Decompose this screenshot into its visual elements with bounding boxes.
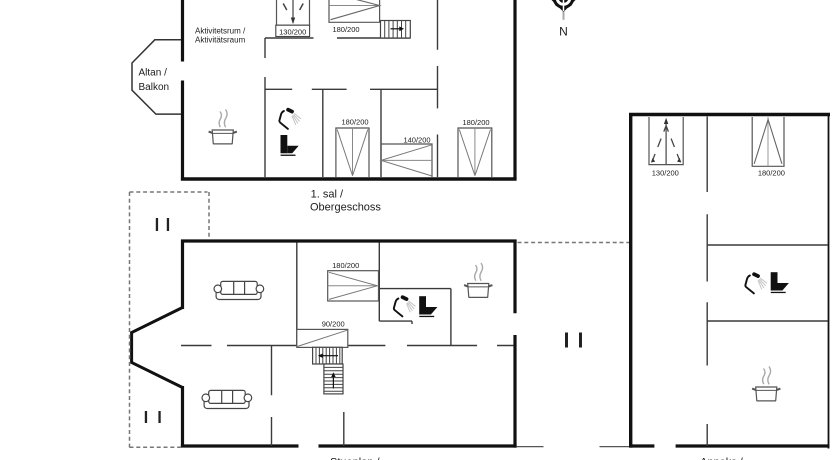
svg-text:90/200: 90/200: [322, 319, 345, 328]
svg-text:180/200: 180/200: [332, 261, 359, 270]
svg-text:180/200: 180/200: [462, 118, 489, 127]
svg-text:Aktivitätsraum: Aktivitätsraum: [195, 35, 246, 44]
svg-text:Aktivitetsrum /: Aktivitetsrum /: [195, 26, 246, 35]
svg-text:1. sal /: 1. sal /: [311, 189, 344, 201]
svg-text:180/200: 180/200: [758, 169, 785, 178]
svg-text:130/200: 130/200: [279, 27, 306, 36]
svg-text:Altan /: Altan /: [139, 68, 168, 79]
svg-text:N: N: [559, 25, 568, 39]
svg-text:Obergeschoss: Obergeschoss: [310, 201, 381, 213]
svg-text:Anneks /: Anneks /: [700, 457, 744, 460]
svg-text:180/200: 180/200: [332, 25, 359, 34]
svg-text:Stueplan /: Stueplan /: [330, 457, 380, 460]
svg-text:180/200: 180/200: [341, 118, 368, 127]
svg-text:140/200: 140/200: [403, 136, 430, 145]
svg-text:130/200: 130/200: [652, 168, 679, 177]
svg-text:Balkon: Balkon: [139, 82, 170, 93]
